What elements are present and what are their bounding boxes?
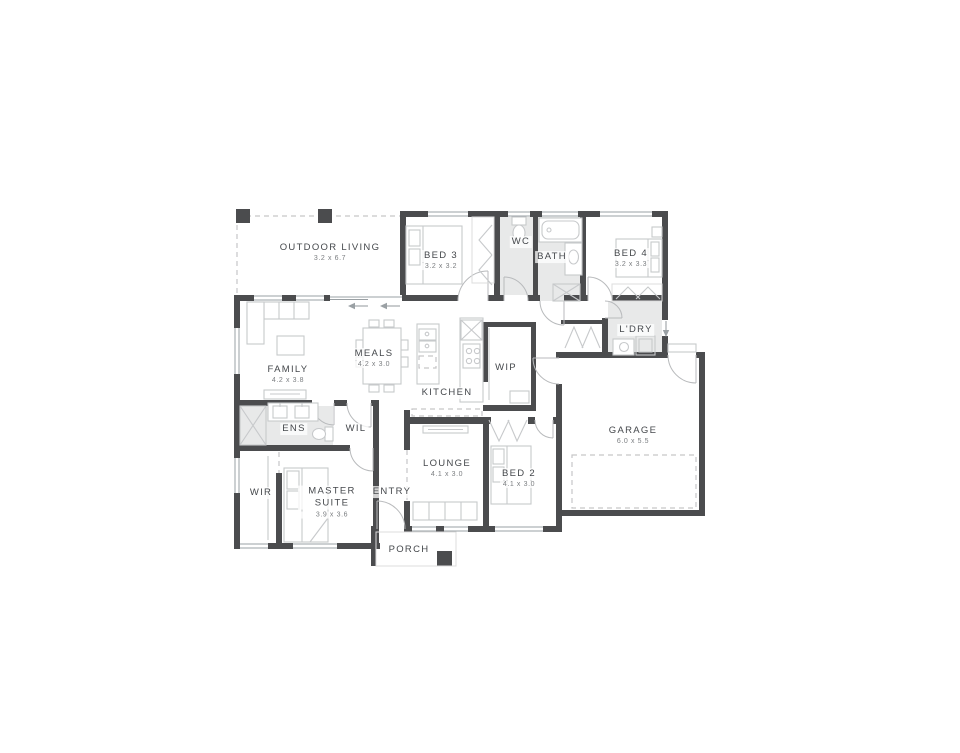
- window: [296, 295, 324, 301]
- lounge-sofa: [413, 502, 477, 520]
- toilet-wc: [512, 217, 526, 241]
- robe-bed2: [489, 420, 527, 441]
- family-ottoman: [277, 336, 304, 355]
- door-bed4: [588, 277, 612, 301]
- ens-vanity: [268, 403, 318, 421]
- kitchen-overhead-dash: [412, 409, 482, 416]
- master-bed: [284, 468, 328, 542]
- door-master: [350, 448, 373, 471]
- window: [495, 526, 543, 532]
- window: [254, 295, 282, 301]
- family-tv-unit: [264, 390, 306, 399]
- door-garage-internal: [533, 358, 559, 384]
- window: [234, 458, 240, 493]
- kitchen-bench-cooktop: [460, 318, 483, 402]
- post: [236, 209, 250, 223]
- window: [542, 211, 578, 217]
- door-bath: [540, 301, 564, 325]
- toilet-ens: [313, 427, 334, 441]
- door-step: [668, 344, 696, 352]
- sliding-door: [330, 295, 402, 301]
- window: [412, 526, 436, 532]
- door-garage-external: [668, 344, 696, 383]
- bed3-bed: [406, 226, 462, 284]
- outdoor-living-boundary: [236, 209, 400, 295]
- window: [444, 526, 468, 532]
- sliding-arrow-icon: [348, 303, 368, 309]
- wip-bench: [489, 328, 529, 403]
- ldry-exit-arrow-icon: [663, 321, 669, 337]
- bath-vanity: [565, 243, 582, 275]
- door-front: [377, 501, 405, 529]
- lounge-shelf: [423, 426, 468, 433]
- window: [240, 543, 268, 549]
- floorplan-page: OUTDOOR LIVING 3.2 x 6.7 BED 3 3.2 x 3.2…: [0, 0, 960, 753]
- linen-closet: [565, 327, 600, 348]
- porch-post: [437, 551, 452, 566]
- furniture: [247, 226, 662, 542]
- post: [318, 209, 332, 223]
- laundry-trough: [613, 339, 634, 355]
- bathtub: [539, 218, 582, 242]
- sliding-arrow-icon: [380, 303, 400, 309]
- door-wil: [347, 403, 371, 427]
- bed4-bed: [616, 227, 662, 277]
- kitchen-island-sink: [417, 324, 439, 384]
- window: [428, 211, 468, 217]
- window: [508, 211, 530, 217]
- window: [293, 543, 337, 549]
- window: [234, 328, 240, 374]
- door-bed2: [535, 420, 553, 438]
- floorplan-drawing: [0, 0, 960, 753]
- bed2-bed: [491, 446, 531, 504]
- dining-table: [356, 320, 408, 392]
- garage-door: [572, 455, 696, 508]
- window: [600, 211, 652, 217]
- robe-bed3: [472, 217, 494, 285]
